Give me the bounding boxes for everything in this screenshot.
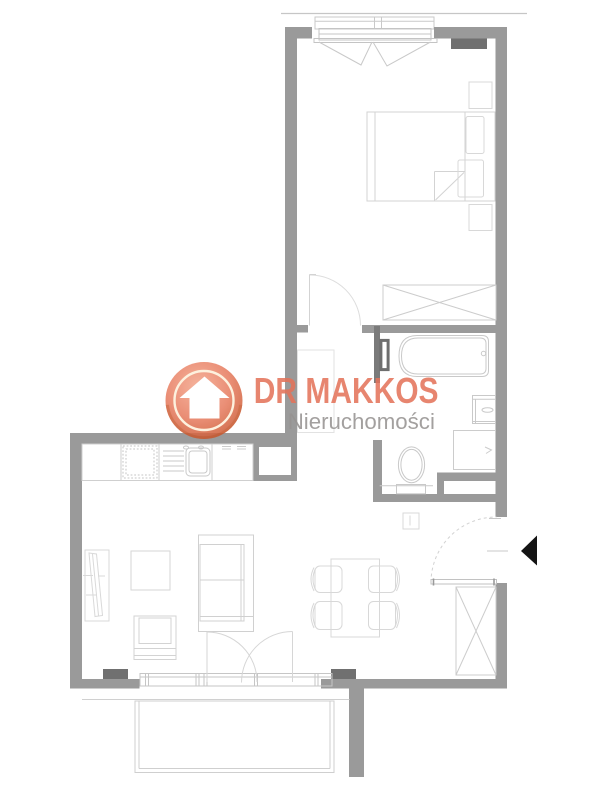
svg-text:Nieruchomości: Nieruchomości xyxy=(288,409,435,434)
svg-text:DR MAKKOS: DR MAKKOS xyxy=(254,370,439,411)
